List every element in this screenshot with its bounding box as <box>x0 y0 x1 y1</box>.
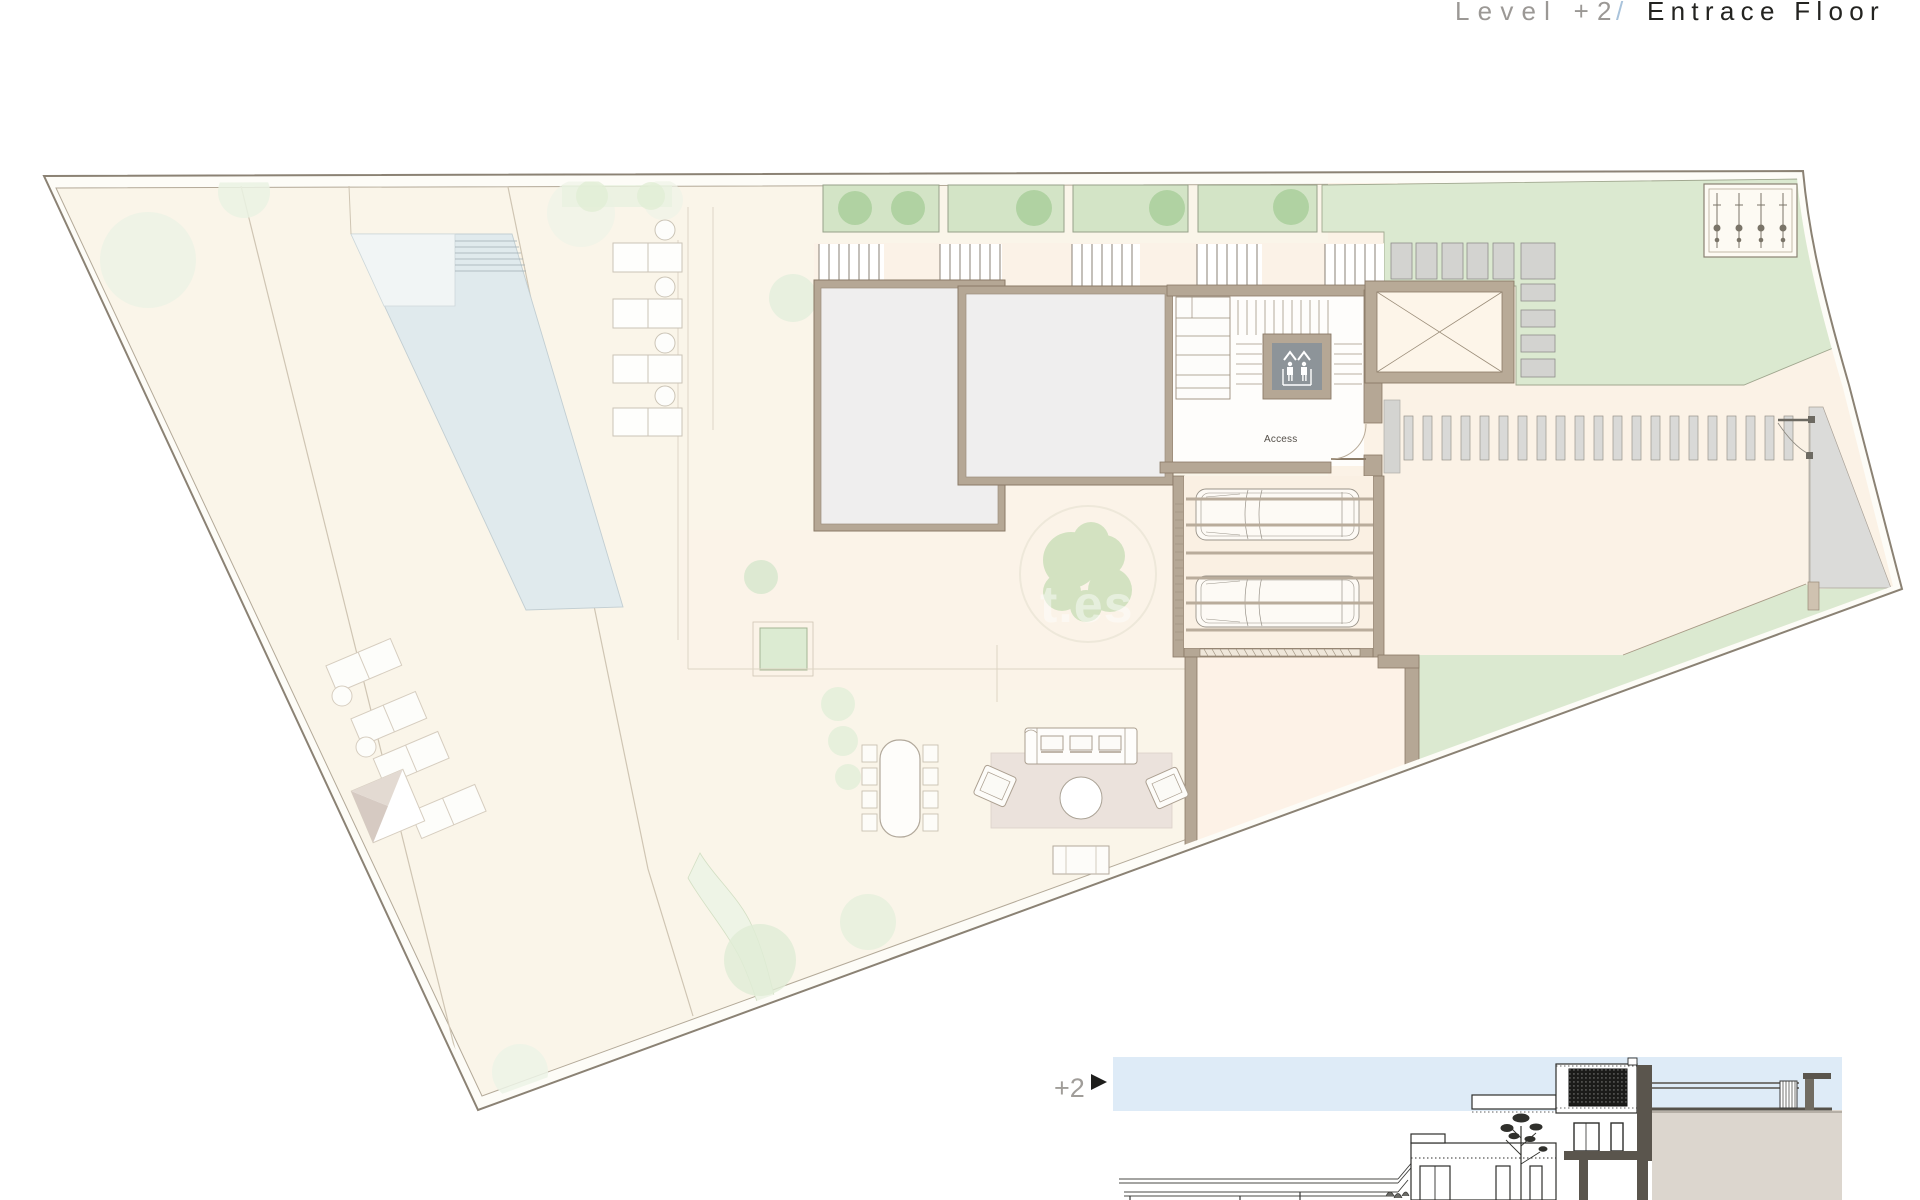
svg-text:Entrace Floor: Entrace Floor <box>1647 0 1885 26</box>
svg-text:/: / <box>1616 0 1624 26</box>
svg-text:Level +2: Level +2 <box>1455 0 1620 26</box>
svg-text:Access: Access <box>1264 434 1297 445</box>
svg-text:t.es: t.es <box>1040 576 1134 634</box>
svg-text:+2: +2 <box>1054 1073 1085 1103</box>
